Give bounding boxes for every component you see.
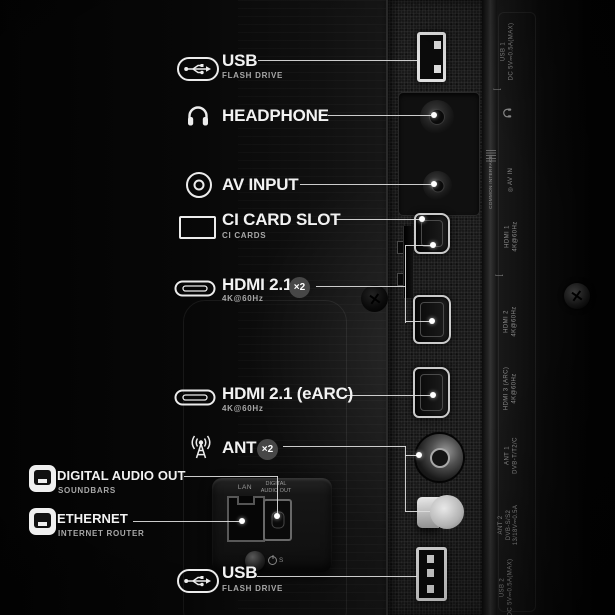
ci-lock-mark: [ <box>493 88 502 90</box>
callout-dot-headphone <box>431 112 437 118</box>
screw <box>361 285 388 312</box>
power-icon <box>268 556 277 565</box>
label-ethernet-sub: INTERNET ROUTER <box>58 529 145 538</box>
antenna-port-2 <box>430 495 464 529</box>
label-av-input: AV INPUT <box>222 175 298 195</box>
callout-line-hdmi2 <box>405 321 431 322</box>
callout-dot-ant1 <box>416 452 422 458</box>
label-hdmi-earc-sub: 4K@60Hz <box>222 404 264 413</box>
av-print-icon: ◎ <box>508 185 514 192</box>
hdmi-icon <box>174 388 216 413</box>
usb-icon <box>177 57 219 81</box>
usb-port-2 <box>416 547 447 601</box>
print-av-in: ◎ AV IN <box>508 157 518 203</box>
label-digital-audio-out-sub: SOUNDBARS <box>58 486 116 495</box>
callout-line-hdmi <box>316 286 406 287</box>
headphone-icon <box>186 103 210 132</box>
label-hdmi-earc: HDMI 2.1 (eARC) <box>222 384 353 404</box>
callout-dot-ci <box>419 216 425 222</box>
callout-line-ci <box>336 219 421 220</box>
callout-line-digital-audio <box>184 476 278 477</box>
callout-dot-hdmi2 <box>429 318 435 324</box>
print-hdmi3: HDMI 3 (ARC)4K@60Hz <box>504 358 519 420</box>
headphone-jack <box>420 100 454 134</box>
label-digital-audio-out: DIGITAL AUDIO OUT <box>57 468 186 483</box>
callout-dot-earc <box>430 392 436 398</box>
print-hdmi2: HDMI 24K@60Hz <box>504 294 519 350</box>
standby-print-label: S <box>268 556 283 565</box>
antenna-icon <box>186 430 216 467</box>
print-usb1: USB 1DC 5V⎓0.5A(MAX) <box>501 17 516 87</box>
ethernet-lan-port <box>227 496 265 542</box>
label-ci-card-slot-sub: CI CARDS <box>222 231 266 240</box>
callout-dot-hdmi1 <box>430 242 436 248</box>
usb-port-1 <box>417 32 446 82</box>
callout-line-ant <box>283 446 406 447</box>
audio-out-icon <box>29 465 56 492</box>
callout-line-headphone <box>328 115 431 116</box>
print-ant1: ANT 1DVB-T/T2/C <box>505 426 520 486</box>
callout-line-digital-audio-drop <box>277 476 278 516</box>
label-hdmi21: HDMI 2.1 <box>222 275 292 295</box>
av-input-icon <box>186 172 212 198</box>
label-usb-top-sub: FLASH DRIVE <box>222 71 283 80</box>
print-ant2: ANT 2DVB-S/S213/18V⎓0.5A <box>498 492 520 558</box>
print-usb2: USB 2DC 5V⎓0.5A(MAX) <box>500 556 515 615</box>
callout-line-usb-bottom <box>257 576 417 577</box>
callout-dot-lan <box>239 518 245 524</box>
digital-audio-out-print-label: DIGITAL AUDIO OUT <box>258 481 294 494</box>
label-usb-top: USB <box>222 51 257 71</box>
av-input-jack <box>423 171 452 200</box>
callout-dot-optical <box>274 513 280 519</box>
label-ant: ANT <box>222 438 256 458</box>
cabinet-edge-ridge <box>482 0 497 615</box>
callout-dot-av <box>431 181 437 187</box>
ant-x2-badge: ×2 <box>257 439 278 460</box>
callout-line-ethernet <box>133 521 240 522</box>
callout-line-usb-top <box>258 60 418 61</box>
guide-mark: [ <box>495 274 504 276</box>
print-common-interface: COMMON INTERFACE <box>488 154 496 210</box>
usb-icon <box>177 569 219 593</box>
callout-line-ant2 <box>405 511 430 512</box>
lan-print-label: LAN <box>228 484 262 491</box>
ci-card-icon <box>179 216 216 239</box>
tv-rear-ports-diagram: LAN DIGITAL AUDIO OUT S USB <box>0 0 615 615</box>
callout-line-hdmi-branch <box>405 245 406 323</box>
label-usb-bottom: USB <box>222 563 257 583</box>
antenna-port-1 <box>414 432 465 483</box>
callout-line-earc <box>346 395 430 396</box>
label-usb-bottom-sub: FLASH DRIVE <box>222 584 283 593</box>
label-ci-card-slot: CI CARD SLOT <box>222 210 340 230</box>
label-hdmi21-sub: 4K@60Hz <box>222 294 264 303</box>
hdmi-icon <box>174 279 216 304</box>
print-hdmi1: HDMI 14K@60Hz <box>505 208 520 266</box>
callout-line-hdmi1 <box>405 245 432 246</box>
headphone-print-icon <box>500 108 518 119</box>
callout-line-av <box>300 184 431 185</box>
label-headphone: HEADPHONE <box>222 106 329 126</box>
screw <box>564 283 590 309</box>
ethernet-icon <box>29 508 56 535</box>
hdmi-x2-badge: ×2 <box>289 277 310 298</box>
label-ethernet: ETHERNET <box>57 511 128 526</box>
